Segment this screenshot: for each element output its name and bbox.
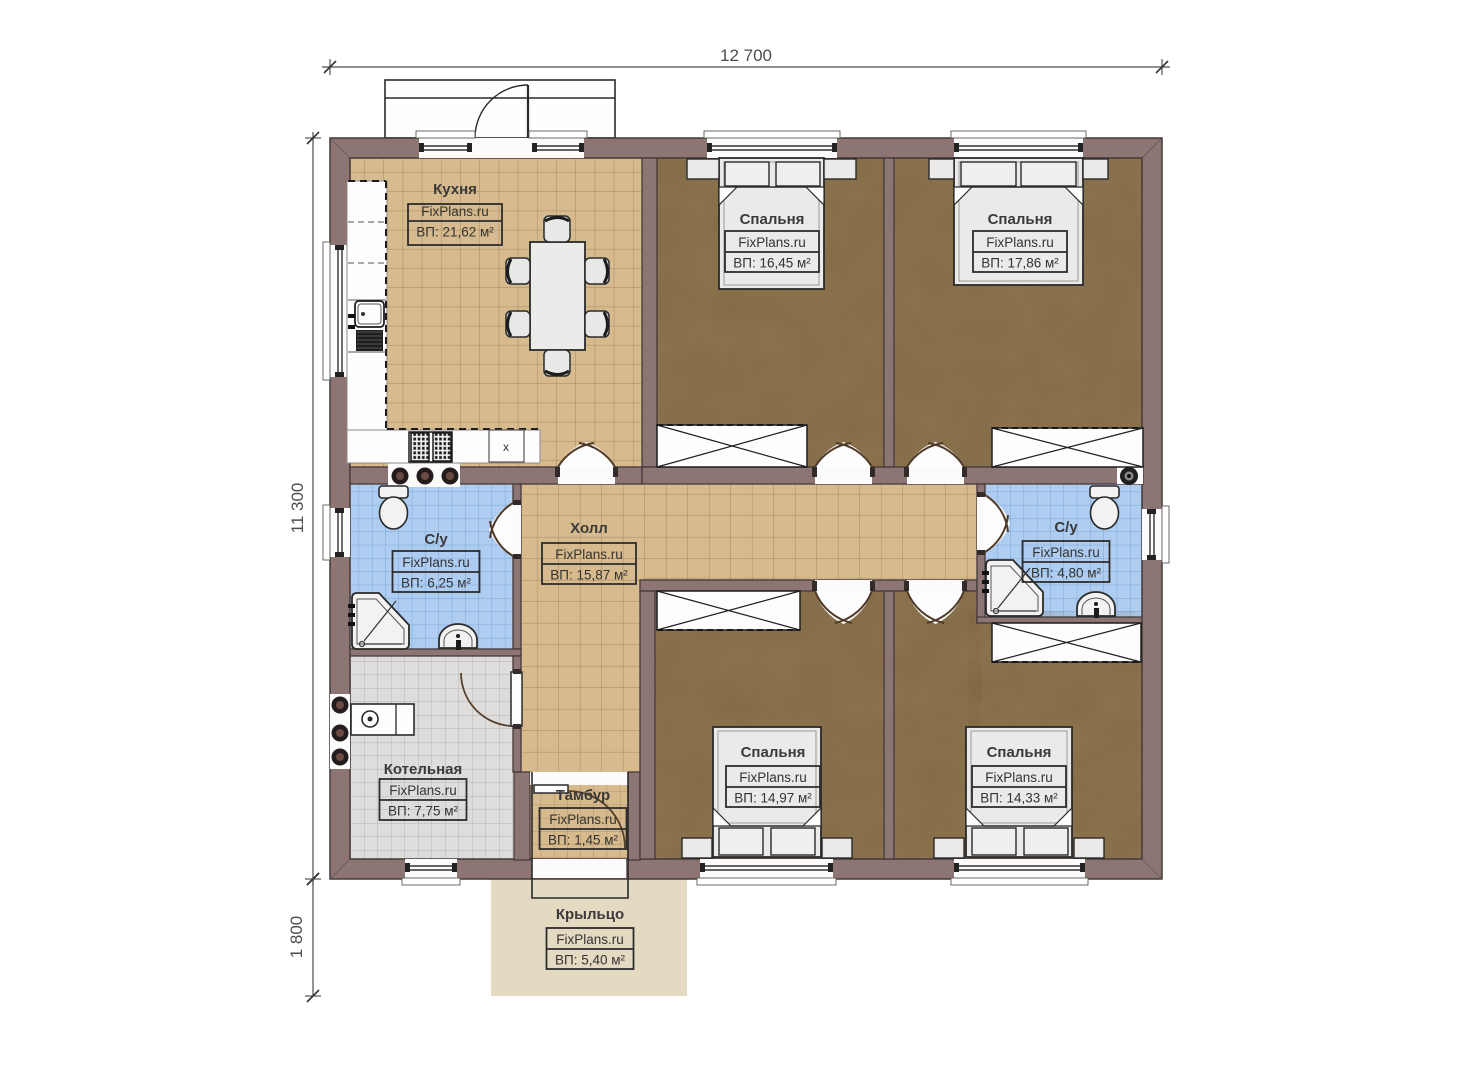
svg-text:Крыльцо: Крыльцо	[556, 906, 624, 923]
svg-text:FixPlans.ru: FixPlans.ru	[549, 812, 617, 827]
svg-text:Спальня: Спальня	[741, 744, 806, 761]
svg-text:С/у: С/у	[424, 531, 448, 548]
svg-text:1 800: 1 800	[287, 916, 306, 959]
svg-text:FixPlans.ru: FixPlans.ru	[738, 235, 806, 250]
svg-text:FixPlans.ru: FixPlans.ru	[389, 783, 457, 798]
svg-text:FixPlans.ru: FixPlans.ru	[739, 770, 807, 785]
svg-text:ВП: 6,25 м²: ВП: 6,25 м²	[401, 576, 472, 591]
svg-text:ВП: 5,40 м²: ВП: 5,40 м²	[555, 953, 626, 968]
svg-text:Кухня: Кухня	[433, 181, 477, 198]
svg-text:ВП: 14,33 м²: ВП: 14,33 м²	[980, 791, 1058, 806]
svg-text:x: x	[503, 440, 509, 454]
svg-text:FixPlans.ru: FixPlans.ru	[1032, 545, 1100, 560]
svg-text:ВП: 21,62 м²: ВП: 21,62 м²	[416, 225, 494, 240]
svg-text:Спальня: Спальня	[740, 211, 805, 228]
svg-text:Котельная: Котельная	[384, 761, 463, 778]
svg-text:FixPlans.ru: FixPlans.ru	[985, 770, 1053, 785]
svg-text:Спальня: Спальня	[988, 211, 1053, 228]
svg-text:ВП: 15,87 м²: ВП: 15,87 м²	[550, 568, 628, 583]
svg-text:ВП: 16,45 м²: ВП: 16,45 м²	[733, 256, 811, 271]
svg-text:ВП: 1,45 м²: ВП: 1,45 м²	[548, 833, 619, 848]
svg-text:FixPlans.ru: FixPlans.ru	[986, 235, 1054, 250]
svg-text:FixPlans.ru: FixPlans.ru	[555, 547, 623, 562]
svg-text:ВП: 4,80 м²: ВП: 4,80 м²	[1031, 566, 1102, 581]
svg-text:ВП: 17,86 м²: ВП: 17,86 м²	[981, 256, 1059, 271]
svg-text:FixPlans.ru: FixPlans.ru	[556, 932, 624, 947]
svg-text:Холл: Холл	[570, 520, 608, 537]
svg-text:ВП: 14,97 м²: ВП: 14,97 м²	[734, 791, 812, 806]
svg-text:С/у: С/у	[1054, 519, 1078, 536]
svg-text:FixPlans.ru: FixPlans.ru	[402, 555, 470, 570]
svg-text:11 300: 11 300	[288, 483, 307, 534]
svg-text:Спальня: Спальня	[987, 744, 1052, 761]
svg-text:FixPlans.ru: FixPlans.ru	[421, 204, 489, 219]
svg-text:12 700: 12 700	[720, 46, 772, 65]
svg-text:Тамбур: Тамбур	[556, 787, 610, 804]
svg-text:ВП: 7,75 м²: ВП: 7,75 м²	[388, 804, 459, 819]
